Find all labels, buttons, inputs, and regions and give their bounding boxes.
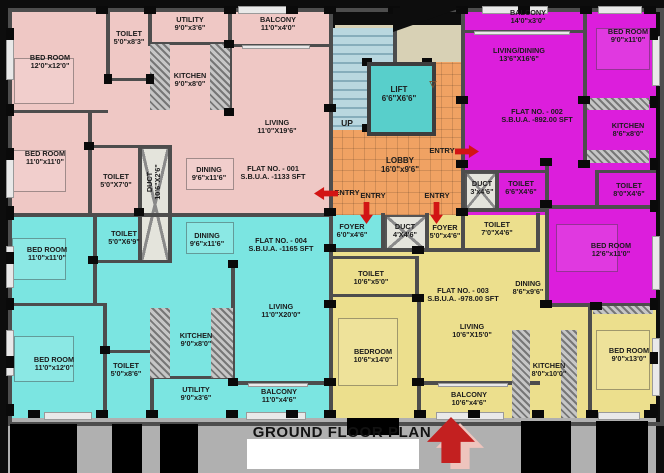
- room-label: DINING8'6"x9'6": [513, 280, 544, 296]
- column-block: [6, 104, 14, 116]
- column-block: [540, 158, 552, 166]
- room-label: FOYER5'0"x4'6": [430, 224, 461, 240]
- window-segment: [598, 6, 642, 14]
- column-block: [6, 298, 14, 310]
- room-label: BED ROOM11'0"x12'0": [34, 356, 74, 372]
- column-block: [134, 208, 144, 216]
- room-label: LIVING11'0"X19'6": [257, 119, 296, 135]
- column-block: [456, 6, 468, 14]
- north-arrow-icon: [427, 417, 485, 469]
- room-label: DUCT3'x4'6": [470, 180, 493, 196]
- column-block: [96, 6, 108, 14]
- room-label: DINING9'6"x11'6": [192, 166, 226, 182]
- room-label: BED ROOM9'0"x13'0": [609, 347, 649, 363]
- room-label: BALCONY11'0"x4'0": [260, 16, 296, 32]
- window-segment: [44, 412, 92, 420]
- column-block: [650, 28, 658, 40]
- column-block: [414, 410, 426, 418]
- room-label: ▽: [430, 79, 437, 89]
- column-block: [644, 410, 656, 418]
- column-block: [324, 6, 336, 14]
- room-label: KITCHEN9'0"x8'0": [180, 332, 212, 348]
- entry-label: ENTRY: [334, 189, 359, 197]
- column-block: [580, 6, 592, 14]
- column-block: [650, 298, 658, 310]
- window-segment: [652, 236, 660, 290]
- room-label: FLAT NO. - 002S.B.U.A. -892.00 SFT: [501, 108, 572, 124]
- column-block: [540, 300, 552, 308]
- column-block: [650, 158, 658, 170]
- column-block: [586, 410, 598, 418]
- room-label: BALCONY14'0"x3'0": [510, 9, 546, 25]
- column-block: [324, 410, 336, 418]
- column-block: [88, 256, 98, 264]
- column-block: [144, 6, 156, 14]
- column-block: [324, 300, 336, 308]
- column-block: [324, 104, 336, 112]
- column-block: [286, 410, 298, 418]
- room-label: BEDROOM10'6"x14'0": [354, 348, 393, 364]
- column-block: [650, 200, 658, 212]
- column-block: [6, 28, 14, 40]
- column-block: [286, 6, 298, 14]
- room-label: TOILET10'6"x5'0": [354, 270, 389, 286]
- entry-label: ENTRY: [424, 192, 449, 200]
- window-segment: [6, 330, 14, 376]
- column-block: [324, 244, 336, 252]
- room-label: TOILET6'6"X4'6": [505, 180, 537, 196]
- column-block: [228, 260, 238, 268]
- room-label: LIFT6'6"X6'6": [382, 86, 417, 104]
- room-label: FOYER6'0"x4'6": [337, 223, 368, 239]
- column-block: [456, 208, 468, 216]
- room-label: UTILITY9'0"x3'6": [175, 16, 206, 32]
- column-block: [6, 252, 14, 264]
- column-block: [104, 74, 112, 84]
- room-label: BALCONY11'0"x4'6": [261, 388, 297, 404]
- room-label: LIVING/DINING13'6"X16'6": [493, 47, 545, 63]
- column-block: [224, 6, 236, 14]
- room-label: BED ROOM11'0"x11'0": [27, 246, 67, 262]
- window-segment: [652, 36, 660, 86]
- entry-label: ENTRY: [429, 147, 454, 155]
- room-label: KITCHEN8'6"x8'0": [612, 122, 644, 138]
- room-label: LIVING10'6"X15'0": [452, 323, 492, 339]
- caption-cover-box: [247, 439, 419, 469]
- room-label: TOILET5'0"x8'6": [111, 362, 142, 378]
- room-label: FLAT NO. - 003S.B.U.A. -978.00 SFT: [427, 287, 498, 303]
- room-label: BALCONY10'6"x4'6": [451, 391, 487, 407]
- column-block: [578, 96, 590, 104]
- column-block: [412, 246, 424, 254]
- entry-label: ENTRY: [360, 192, 385, 200]
- window-segment: [242, 45, 310, 49]
- room-label: BED ROOM12'6"x11'0": [591, 242, 631, 258]
- window-segment: [598, 412, 640, 420]
- column-block: [590, 302, 602, 310]
- window-segment: [6, 158, 14, 198]
- window-segment: [474, 31, 570, 35]
- room-label: LIVING11'0"X20'0": [261, 303, 300, 319]
- room-label: TOILET8'0"X4'6": [613, 182, 645, 198]
- walkway-block: [112, 424, 142, 473]
- walkway-block: [160, 424, 198, 473]
- column-block: [228, 378, 238, 386]
- room-label: DUCT10'6"X2'6": [146, 164, 162, 200]
- room-label: TOILET5'0"X7'0": [100, 173, 132, 189]
- column-block: [6, 148, 14, 160]
- column-block: [96, 410, 108, 418]
- column-block: [540, 200, 552, 208]
- room-label: BED ROOM11'0"x11'0": [25, 150, 65, 166]
- room-label: BED ROOM12'0"x12'0": [30, 54, 70, 70]
- room-label: DUCT4'X4'6": [393, 223, 417, 239]
- room-label: KITCHEN8'0"x10'0": [532, 362, 567, 378]
- column-block: [6, 356, 14, 368]
- column-block: [224, 108, 234, 116]
- column-block: [100, 346, 110, 354]
- column-block: [28, 410, 40, 418]
- column-block: [226, 410, 238, 418]
- column-block: [6, 404, 14, 416]
- window-segment: [6, 36, 14, 80]
- room-label: LOBBY16'0"x9'6": [381, 157, 419, 175]
- column-block: [456, 96, 468, 104]
- column-block: [224, 40, 234, 48]
- floor-plan: BED ROOM12'0"x12'0"TOILET5'0"x8'3"UTILIT…: [0, 0, 664, 473]
- column-block: [412, 294, 424, 302]
- room-label: UP: [341, 119, 353, 129]
- column-block: [456, 160, 468, 168]
- column-block: [650, 352, 658, 364]
- column-block: [650, 96, 658, 108]
- column-block: [6, 206, 14, 220]
- room-label: TOILET5'0"X6'9": [108, 230, 140, 246]
- room-label: KITCHEN9'0"x8'0": [174, 72, 206, 88]
- column-block: [324, 378, 336, 386]
- column-block: [412, 378, 424, 386]
- room-label: UTILITY9'0"x3'6": [181, 386, 212, 402]
- room-label: FLAT NO. - 004S.B.U.A. -1165 SFT: [249, 237, 314, 253]
- window-segment: [438, 383, 508, 387]
- column-block: [324, 208, 336, 216]
- room-label: TOILET7'0"X4'6": [481, 221, 513, 237]
- room-label: DINING9'6"x11'6": [190, 232, 224, 248]
- room-label: BED ROOM9'0"x11'0": [608, 28, 648, 44]
- column-block: [644, 6, 656, 14]
- walkway-block: [10, 424, 77, 473]
- walkway-block: [521, 421, 571, 473]
- room-label: TOILET5'0"x8'3": [114, 30, 145, 46]
- walkway-block: [596, 421, 648, 473]
- window-segment: [652, 338, 660, 396]
- room-label: FLAT NO. - 001S.B.U.A. -1133 SFT: [241, 165, 306, 181]
- column-block: [146, 74, 154, 84]
- column-block: [146, 410, 158, 418]
- column-block: [578, 160, 590, 168]
- column-block: [84, 142, 94, 150]
- column-block: [532, 410, 544, 418]
